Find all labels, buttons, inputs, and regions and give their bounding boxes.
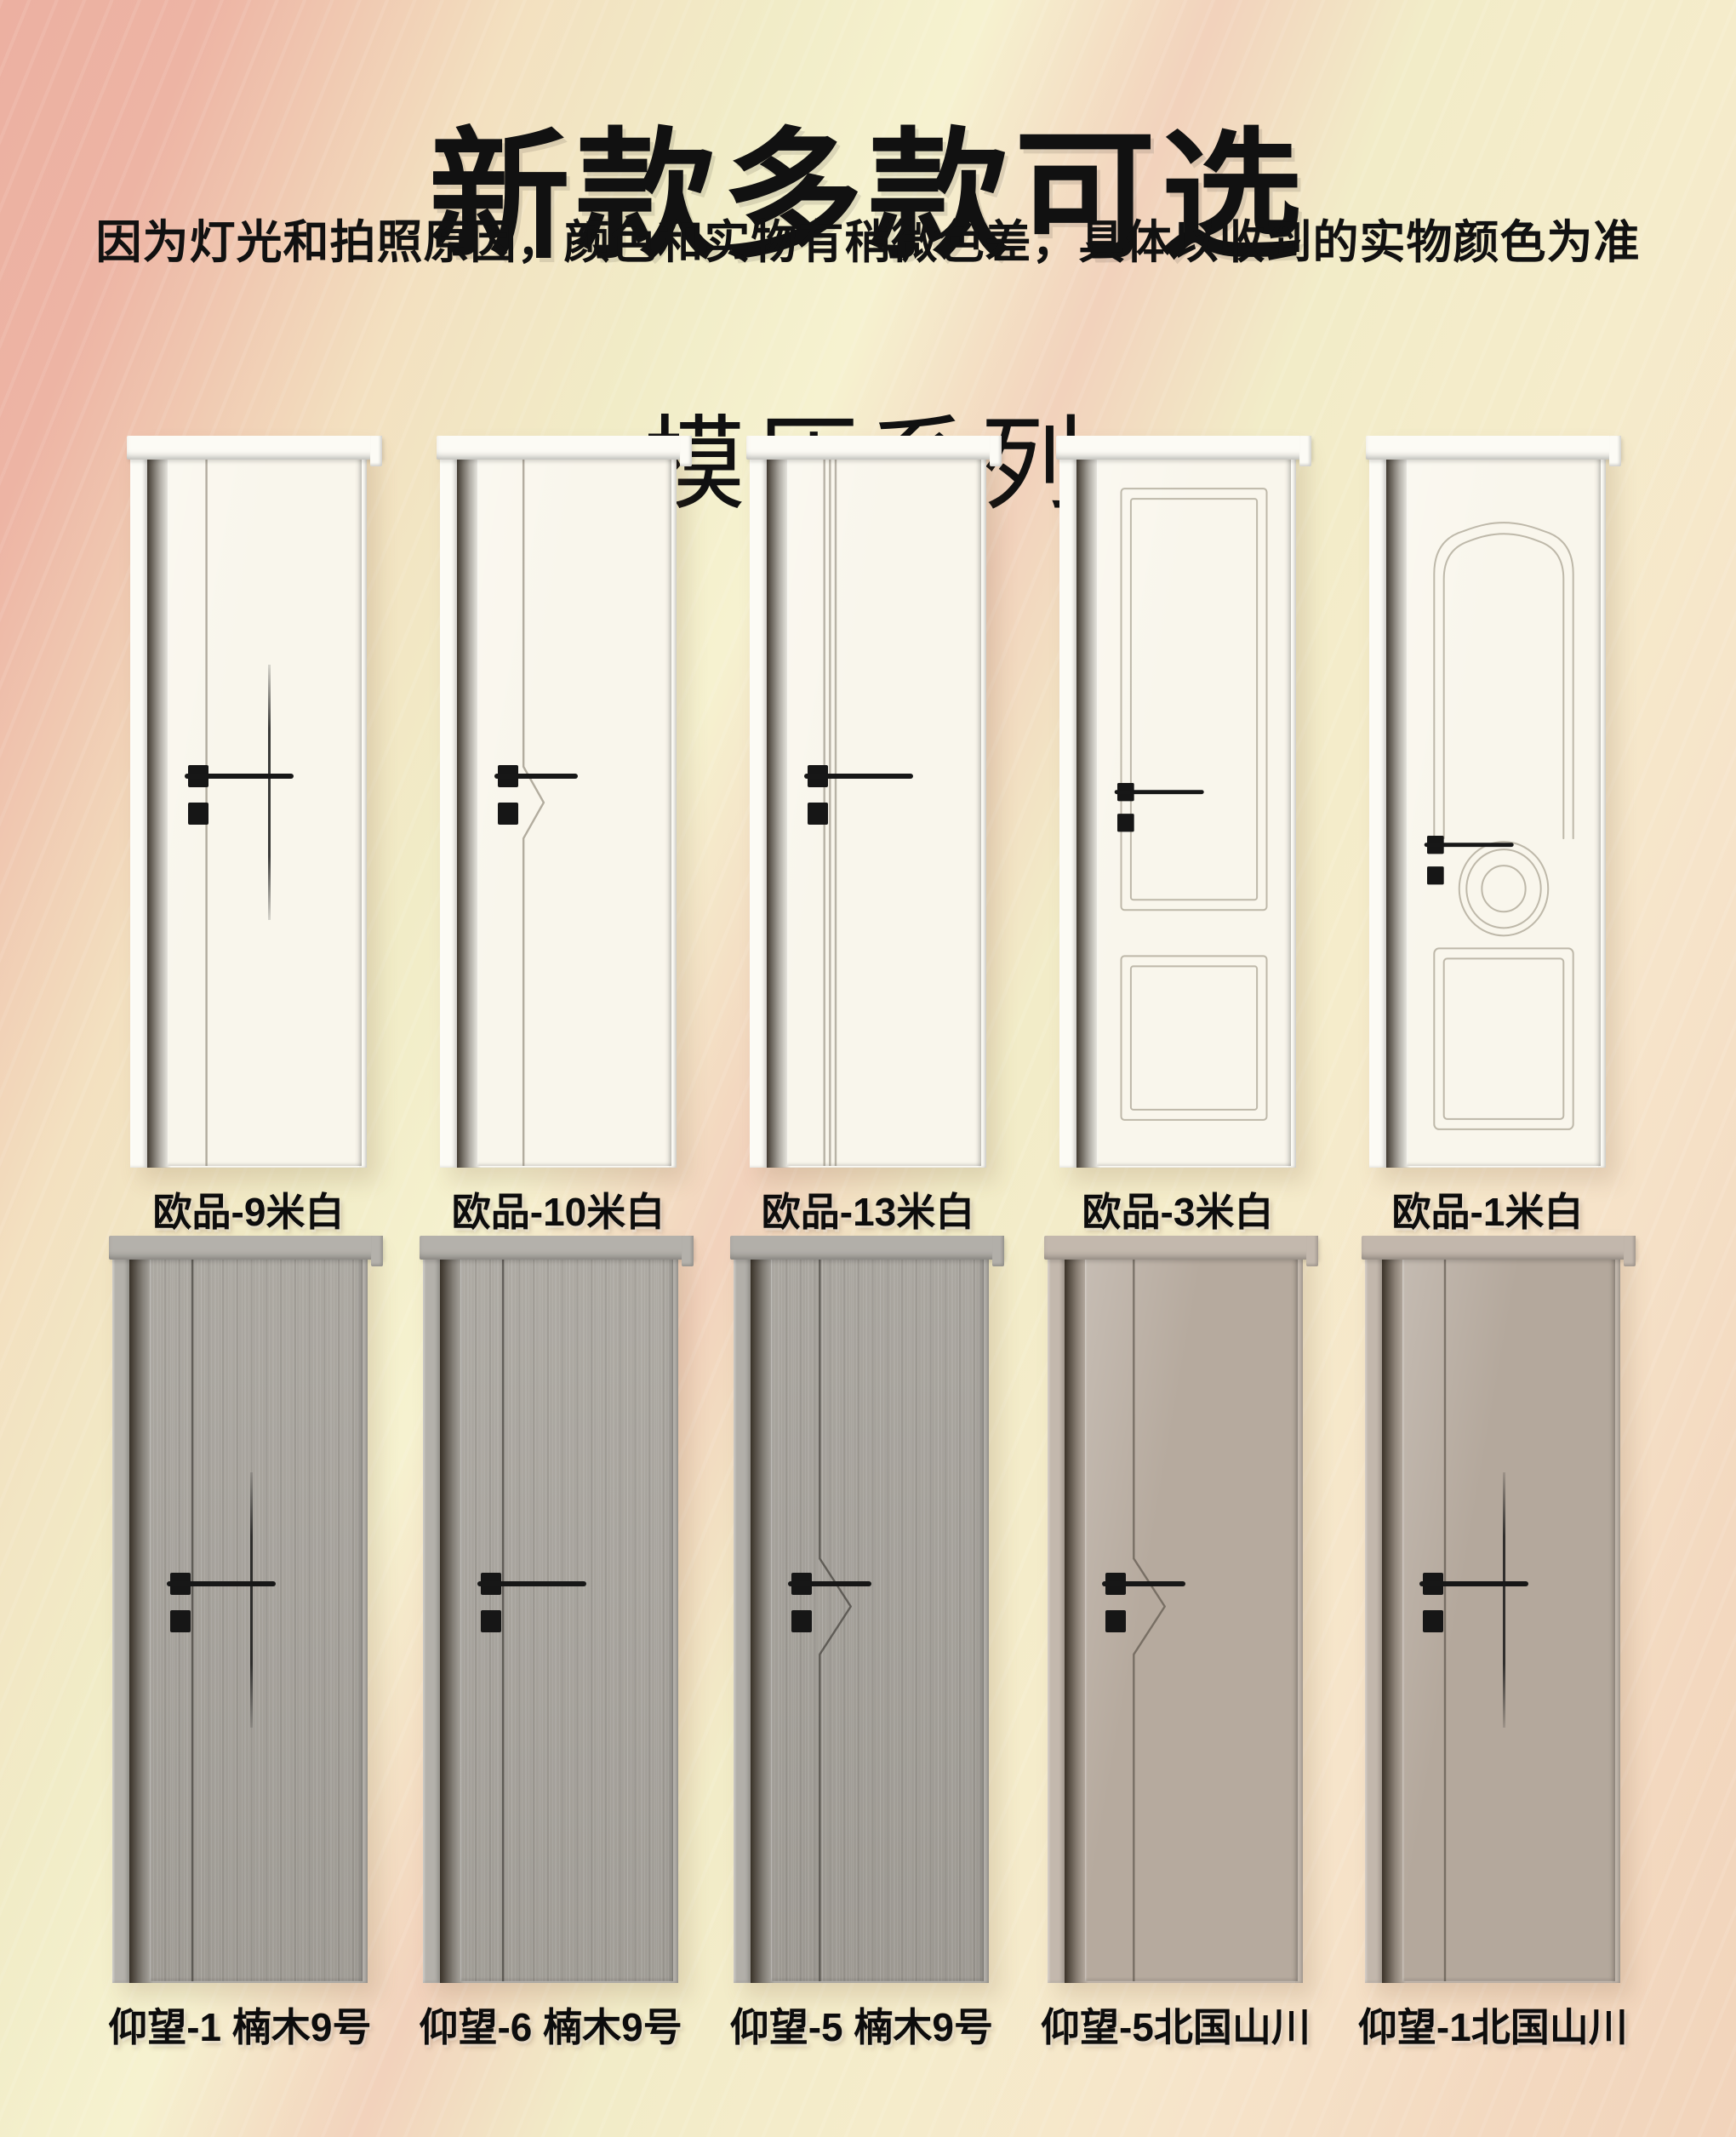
door-handle (170, 1573, 298, 1634)
door-card: 欧品-10米白 (440, 436, 677, 1237)
door-image (1059, 436, 1296, 1168)
door-card: 仰望-6 楠木9号 (419, 1236, 682, 2053)
door-handle (188, 765, 316, 826)
poster-canvas: 新款多款可选 因为灯光和拍照原因，颜色和实物有稍微色差，具体以收到的实物颜色为准… (0, 0, 1736, 2137)
door-leaf (1407, 458, 1601, 1166)
door-handle-bar (788, 1581, 871, 1586)
door-handle-bar (1102, 1581, 1185, 1586)
door-handle-bar (804, 774, 913, 779)
door-lock-knob (188, 803, 208, 825)
door-frame-left-jamb (734, 1254, 751, 1983)
door-lock-knob (1427, 866, 1444, 884)
door-image (440, 436, 677, 1168)
door-image (423, 1236, 678, 1983)
door-handle (1427, 836, 1532, 886)
door-image (1365, 1236, 1620, 1983)
door-handle (1423, 1573, 1550, 1634)
door-image (130, 436, 367, 1168)
door-handle-bar (1425, 843, 1514, 847)
door-card: 仰望-1北国山川 (1358, 1236, 1628, 2053)
door-leaf (477, 458, 671, 1166)
door-leaf (1085, 1258, 1298, 1981)
door-frame-left-jamb (112, 1254, 129, 1983)
door-frame-lintel (1056, 436, 1311, 460)
door-lock-knob (498, 803, 518, 825)
door-frame-left-jamb (750, 454, 767, 1168)
door-frame-left-jamb (1048, 1254, 1065, 1983)
door-leaf (1402, 1258, 1615, 1981)
door-card: 仰望-1 楠木9号 (108, 1236, 371, 2053)
door-card: 欧品-3米白 (1059, 436, 1296, 1237)
door-image (112, 1236, 368, 1983)
door-row-wood-series: 仰望-1 楠木9号 (0, 1236, 1736, 2053)
door-carving-lines (1407, 458, 1601, 1166)
door-handle (1117, 783, 1222, 833)
door-handle (808, 765, 935, 826)
door-label: 仰望-5北国山川 (1041, 1997, 1311, 2053)
door-frame-lintel (730, 1236, 1004, 1260)
door-frame-lintel (1362, 1236, 1636, 1260)
door-image (750, 436, 986, 1168)
door-frame-left-jamb (1059, 454, 1076, 1168)
door-frame-left-jamb (130, 454, 147, 1168)
door-lock-knob (1105, 1610, 1126, 1632)
door-label: 仰望-5 楠木9号 (730, 1997, 993, 2053)
door-handle-bar (1419, 1581, 1528, 1586)
door-frame-lintel (746, 436, 1002, 460)
door-frame-lintel (420, 1236, 694, 1260)
door-card: 欧品-13米白 (750, 436, 986, 1237)
door-lock-knob (1117, 814, 1134, 831)
door-handle (498, 765, 625, 826)
door-row-white-series: 欧品-9米白 (0, 436, 1736, 1237)
door-frame-left-jamb (440, 454, 457, 1168)
door-image (1048, 1236, 1303, 1983)
door-handle (481, 1573, 608, 1634)
door-handle-bar (167, 1581, 276, 1586)
door-label: 欧品-1米白 (1392, 1181, 1584, 1237)
door-card: 仰望-5 楠木9号 (730, 1236, 993, 2053)
door-frame-lintel (437, 436, 692, 460)
door-leaf (460, 1258, 673, 1981)
door-leaf (1097, 458, 1291, 1166)
door-leaf (150, 1258, 363, 1981)
door-handle-bar (185, 774, 294, 779)
door-label: 欧品-10米白 (452, 1181, 665, 1237)
door-handle (791, 1573, 919, 1634)
door-lock-knob (1423, 1610, 1443, 1632)
door-frame-lintel (127, 436, 382, 460)
door-label: 欧品-3米白 (1082, 1181, 1274, 1237)
door-card: 欧品-1米白 (1369, 436, 1606, 1237)
door-leaf (771, 1258, 984, 1981)
door-frame-lintel (109, 1236, 383, 1260)
door-image (1369, 436, 1606, 1168)
door-lock-knob (791, 1610, 812, 1632)
door-handle-bar (1115, 790, 1204, 794)
door-frame-lintel (1366, 436, 1621, 460)
door-lock-knob (481, 1610, 501, 1632)
door-handle (1105, 1573, 1233, 1634)
door-label: 仰望-1北国山川 (1358, 1997, 1628, 2053)
door-frame-left-jamb (1365, 1254, 1382, 1983)
door-leaf (787, 458, 981, 1166)
door-label: 欧品-13米白 (762, 1181, 974, 1237)
door-frame-lintel (1044, 1236, 1318, 1260)
door-handle-bar (477, 1581, 586, 1586)
door-card: 仰望-5北国山川 (1041, 1236, 1311, 2053)
door-card: 欧品-9米白 (130, 436, 367, 1237)
door-frame-left-jamb (423, 1254, 440, 1983)
door-label: 仰望-6 楠木9号 (419, 1997, 682, 2053)
door-image (734, 1236, 989, 1983)
door-lock-knob (808, 803, 828, 825)
door-frame-left-jamb (1369, 454, 1386, 1168)
door-leaf (168, 458, 362, 1166)
door-handle-bar (494, 774, 578, 779)
door-label: 欧品-9米白 (153, 1181, 345, 1237)
door-lock-knob (170, 1610, 191, 1632)
door-label: 仰望-1 楠木9号 (108, 1997, 371, 2053)
color-disclaimer-text: 因为灯光和拍照原因，颜色和实物有稍微色差，具体以收到的实物颜色为准 (0, 204, 1736, 271)
